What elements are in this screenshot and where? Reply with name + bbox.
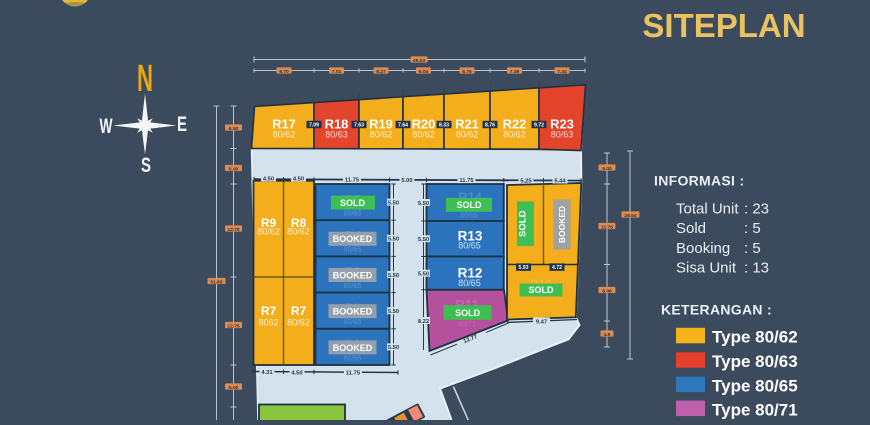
svg-text:Booking: Booking xyxy=(676,240,730,257)
svg-text:5.50: 5.50 xyxy=(388,345,399,351)
svg-text:4.50: 4.50 xyxy=(291,370,302,376)
svg-text:80/62: 80/62 xyxy=(456,130,479,140)
svg-text:Type 80/65: Type 80/65 xyxy=(712,376,798,395)
svg-text:80/62: 80/62 xyxy=(503,130,526,140)
svg-text:Sisa Unit: Sisa Unit xyxy=(676,260,737,277)
svg-text:7.64: 7.64 xyxy=(398,123,408,129)
svg-text:Sold: Sold xyxy=(676,220,706,237)
svg-text:4.50: 4.50 xyxy=(263,177,274,183)
svg-text:5.50: 5.50 xyxy=(388,237,399,243)
svg-text:5.50: 5.50 xyxy=(388,273,399,279)
svg-text:4.31: 4.31 xyxy=(261,370,273,376)
svg-text:80/65: 80/65 xyxy=(344,283,362,290)
svg-text:4.50: 4.50 xyxy=(293,177,304,183)
svg-text:80/63: 80/63 xyxy=(325,130,348,140)
svg-text:12.75: 12.75 xyxy=(227,323,240,329)
svg-text:KETERANGAN :: KETERANGAN : xyxy=(661,302,772,318)
svg-text:80/65: 80/65 xyxy=(458,278,481,288)
svg-text:13.70: 13.70 xyxy=(227,227,240,233)
svg-text:: 13: : 13 xyxy=(744,260,769,277)
svg-text:SOLD: SOLD xyxy=(528,285,554,295)
svg-text:4.5: 4.5 xyxy=(604,332,611,338)
svg-text:49.03: 49.03 xyxy=(413,58,426,64)
svg-text:BOOKED: BOOKED xyxy=(333,234,373,244)
svg-text:S: S xyxy=(141,154,151,177)
svg-text:SOLD: SOLD xyxy=(455,308,481,318)
svg-text:11.75: 11.75 xyxy=(459,178,474,184)
svg-text:6.04: 6.04 xyxy=(419,69,429,75)
svg-text:80/65: 80/65 xyxy=(344,211,362,218)
svg-text:7.09: 7.09 xyxy=(309,123,319,129)
svg-text:SOLD: SOLD xyxy=(518,210,529,237)
svg-text:6.50: 6.50 xyxy=(229,126,239,132)
svg-text:BOOKED: BOOKED xyxy=(333,343,373,353)
svg-text:5.50: 5.50 xyxy=(418,237,429,243)
svg-text:Type 80/63: Type 80/63 xyxy=(712,352,798,371)
svg-text:INFORMASI :: INFORMASI : xyxy=(654,172,744,188)
svg-text:8.76: 8.76 xyxy=(485,123,495,129)
svg-text:11.75: 11.75 xyxy=(601,224,613,230)
svg-text:4.72: 4.72 xyxy=(552,265,562,271)
svg-text:7.34: 7.34 xyxy=(557,69,567,75)
svg-text:Total Unit: Total Unit xyxy=(676,201,739,218)
svg-text:9.72: 9.72 xyxy=(534,123,544,129)
svg-text:5.00: 5.00 xyxy=(401,178,412,184)
svg-text:8.36: 8.36 xyxy=(602,288,612,294)
svg-text:11.75: 11.75 xyxy=(345,178,360,184)
svg-text:11.75: 11.75 xyxy=(346,371,361,377)
svg-text:80/62: 80/62 xyxy=(273,130,296,140)
svg-text:SITEPLAN: SITEPLAN xyxy=(642,7,805,44)
svg-text:5.00: 5.00 xyxy=(229,385,239,391)
svg-text:BOOKED: BOOKED xyxy=(557,206,567,243)
svg-text:80/62: 80/62 xyxy=(287,318,310,328)
svg-text:: 23: : 23 xyxy=(744,201,769,218)
svg-text:Type 80/71: Type 80/71 xyxy=(712,400,798,419)
svg-text:29.64: 29.64 xyxy=(624,213,637,219)
svg-text:8.27: 8.27 xyxy=(376,69,386,75)
svg-text:80/62: 80/62 xyxy=(287,227,310,237)
svg-text:: 5: : 5 xyxy=(744,240,761,257)
svg-text:80/65: 80/65 xyxy=(344,247,362,254)
svg-text:5.50: 5.50 xyxy=(418,201,429,207)
svg-text:5.25: 5.25 xyxy=(520,179,532,185)
svg-text:80/62: 80/62 xyxy=(412,130,435,140)
svg-text:80/65: 80/65 xyxy=(458,241,481,251)
svg-text:80/65: 80/65 xyxy=(460,212,478,219)
svg-text:7.39: 7.39 xyxy=(510,69,520,75)
svg-text:R7: R7 xyxy=(291,304,307,318)
svg-text:5.93: 5.93 xyxy=(518,265,528,271)
svg-text:5.00: 5.00 xyxy=(602,166,612,172)
svg-text:80/65: 80/65 xyxy=(344,355,362,362)
svg-text:8.33: 8.33 xyxy=(439,123,449,129)
svg-text:80/62: 80/62 xyxy=(257,227,280,237)
svg-text:5.50: 5.50 xyxy=(418,272,429,278)
svg-text:5.50: 5.50 xyxy=(388,309,399,315)
svg-text:8.70: 8.70 xyxy=(279,69,289,75)
svg-text:8.22: 8.22 xyxy=(418,319,429,325)
svg-text:E: E xyxy=(177,113,187,136)
svg-text:80/62: 80/62 xyxy=(370,130,393,140)
svg-text:: 5: : 5 xyxy=(744,220,761,237)
svg-text:BOOKED: BOOKED xyxy=(333,307,373,317)
svg-text:R7: R7 xyxy=(261,304,277,318)
svg-text:80/71: 80/71 xyxy=(458,322,476,329)
svg-text:51.65: 51.65 xyxy=(210,279,223,285)
svg-text:9.47: 9.47 xyxy=(536,319,547,325)
svg-text:7.63: 7.63 xyxy=(354,123,364,129)
svg-text:W: W xyxy=(100,115,113,138)
svg-text:BOOKED: BOOKED xyxy=(333,270,373,280)
svg-text:5.00: 5.00 xyxy=(229,166,239,172)
svg-text:SOLD: SOLD xyxy=(340,198,366,208)
svg-text:7.01: 7.01 xyxy=(332,69,342,75)
svg-text:SOLD: SOLD xyxy=(456,200,482,210)
svg-text:Type 80/62: Type 80/62 xyxy=(712,328,798,347)
svg-text:80/63: 80/63 xyxy=(551,130,574,140)
svg-text:80/65: 80/65 xyxy=(344,319,362,326)
svg-text:8062: 8062 xyxy=(258,318,278,328)
svg-text:5.44: 5.44 xyxy=(554,179,566,185)
svg-text:6.75: 6.75 xyxy=(462,69,472,75)
svg-text:5.50: 5.50 xyxy=(388,200,399,206)
